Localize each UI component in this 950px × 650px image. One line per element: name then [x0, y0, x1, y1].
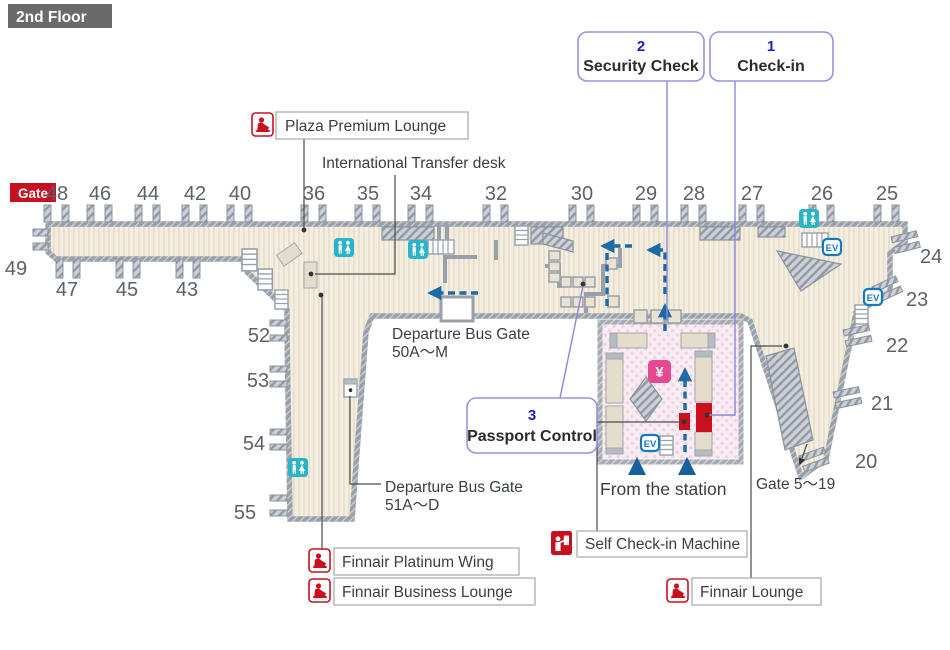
passport-control-label: Passport Control [467, 428, 597, 445]
svg-text:49: 49 [5, 258, 27, 280]
svg-text:20: 20 [855, 451, 877, 473]
passport-control-number: 3 [528, 407, 536, 424]
svg-text:EV: EV [644, 439, 657, 450]
callout-check-in: 1 Check-in [710, 32, 833, 81]
svg-text:Plaza Premium Lounge: Plaza Premium Lounge [285, 118, 446, 135]
svg-text:22: 22 [886, 335, 908, 357]
wing-elevator [344, 379, 357, 397]
svg-text:EV: EV [826, 243, 839, 254]
svg-text:50A〜M: 50A〜M [392, 344, 448, 361]
restroom-icon [408, 240, 428, 259]
svg-text:24: 24 [920, 246, 942, 268]
label-international-transfer-desk: International Transfer desk [322, 155, 506, 172]
svg-text:21: 21 [871, 393, 893, 415]
currency-exchange-icon: ¥ [648, 360, 671, 383]
svg-text:43: 43 [176, 279, 198, 301]
airport-floor-map: ¥ [0, 0, 950, 650]
floor-label: 2nd Floor [16, 9, 87, 26]
label-departure-bus-gate-50: Departure Bus Gate 50A〜M [392, 326, 530, 361]
svg-text:48: 48 [46, 183, 68, 205]
svg-text:30: 30 [571, 183, 593, 205]
svg-text:29: 29 [635, 183, 657, 205]
svg-text:40: 40 [229, 183, 251, 205]
check-in-number: 1 [767, 38, 775, 55]
lounge-icon [667, 579, 688, 602]
security-check-number: 2 [637, 38, 645, 55]
svg-text:52: 52 [248, 325, 270, 347]
svg-text:Finnair Platinum Wing: Finnair Platinum Wing [342, 554, 494, 571]
floor-map-svg: ¥ [0, 0, 950, 650]
restroom-icon [288, 458, 308, 477]
svg-text:23: 23 [906, 289, 928, 311]
svg-text:44: 44 [137, 183, 159, 205]
svg-text:Self Check-in Machine: Self Check-in Machine [585, 536, 740, 553]
floor-badge: 2nd Floor [8, 4, 112, 28]
label-finnair-lounge: Finnair Lounge [667, 578, 821, 605]
label-plaza-premium-lounge: Plaza Premium Lounge [252, 112, 468, 139]
lounge-icon [252, 113, 273, 136]
currency-symbol: ¥ [655, 364, 664, 381]
check-in-counter [696, 403, 712, 432]
svg-text:34: 34 [410, 183, 432, 205]
gate-badge-label: Gate [18, 186, 49, 201]
svg-text:EV: EV [867, 293, 880, 304]
svg-text:36: 36 [303, 183, 325, 205]
callout-passport-control: 3 Passport Control [467, 398, 597, 453]
svg-text:27: 27 [741, 183, 763, 205]
svg-text:45: 45 [116, 279, 138, 301]
lounge-icon [309, 579, 330, 602]
label-from-the-station: From the station [600, 479, 726, 499]
svg-text:26: 26 [811, 183, 833, 205]
restroom-icon [334, 238, 354, 257]
label-finnair-business-lounge: Finnair Business Lounge [309, 578, 535, 605]
lounge-icon [309, 549, 330, 572]
svg-text:Departure Bus Gate: Departure Bus Gate [392, 326, 530, 343]
svg-text:47: 47 [56, 279, 78, 301]
svg-text:42: 42 [184, 183, 206, 205]
self-check-in-icon [551, 531, 572, 555]
callout-security-check: 2 Security Check [578, 32, 704, 81]
svg-text:35: 35 [357, 183, 379, 205]
label-gate-5-19: Gate 5〜19 [756, 476, 835, 493]
svg-text:Departure Bus Gate: Departure Bus Gate [385, 479, 523, 496]
elevator-icon: EV [641, 435, 659, 451]
svg-text:28: 28 [683, 183, 705, 205]
svg-text:46: 46 [89, 183, 111, 205]
svg-text:54: 54 [243, 433, 265, 455]
elevator-icon: EV [823, 239, 841, 255]
svg-text:51A〜D: 51A〜D [385, 497, 439, 514]
restroom-icon [799, 209, 819, 228]
label-self-check-in-machine: Self Check-in Machine [551, 531, 747, 557]
svg-text:53: 53 [247, 370, 269, 392]
label-departure-bus-gate-51: Departure Bus Gate 51A〜D [385, 479, 523, 514]
label-finnair-platinum-wing: Finnair Platinum Wing [309, 548, 519, 575]
svg-text:25: 25 [876, 183, 898, 205]
check-in-label: Check-in [737, 58, 805, 75]
svg-text:55: 55 [234, 502, 256, 524]
svg-text:Finnair Business Lounge: Finnair Business Lounge [342, 584, 513, 601]
security-check-label: Security Check [583, 58, 699, 75]
svg-text:Finnair Lounge: Finnair Lounge [700, 584, 803, 601]
elevator-icon: EV [864, 289, 882, 305]
svg-text:32: 32 [485, 183, 507, 205]
